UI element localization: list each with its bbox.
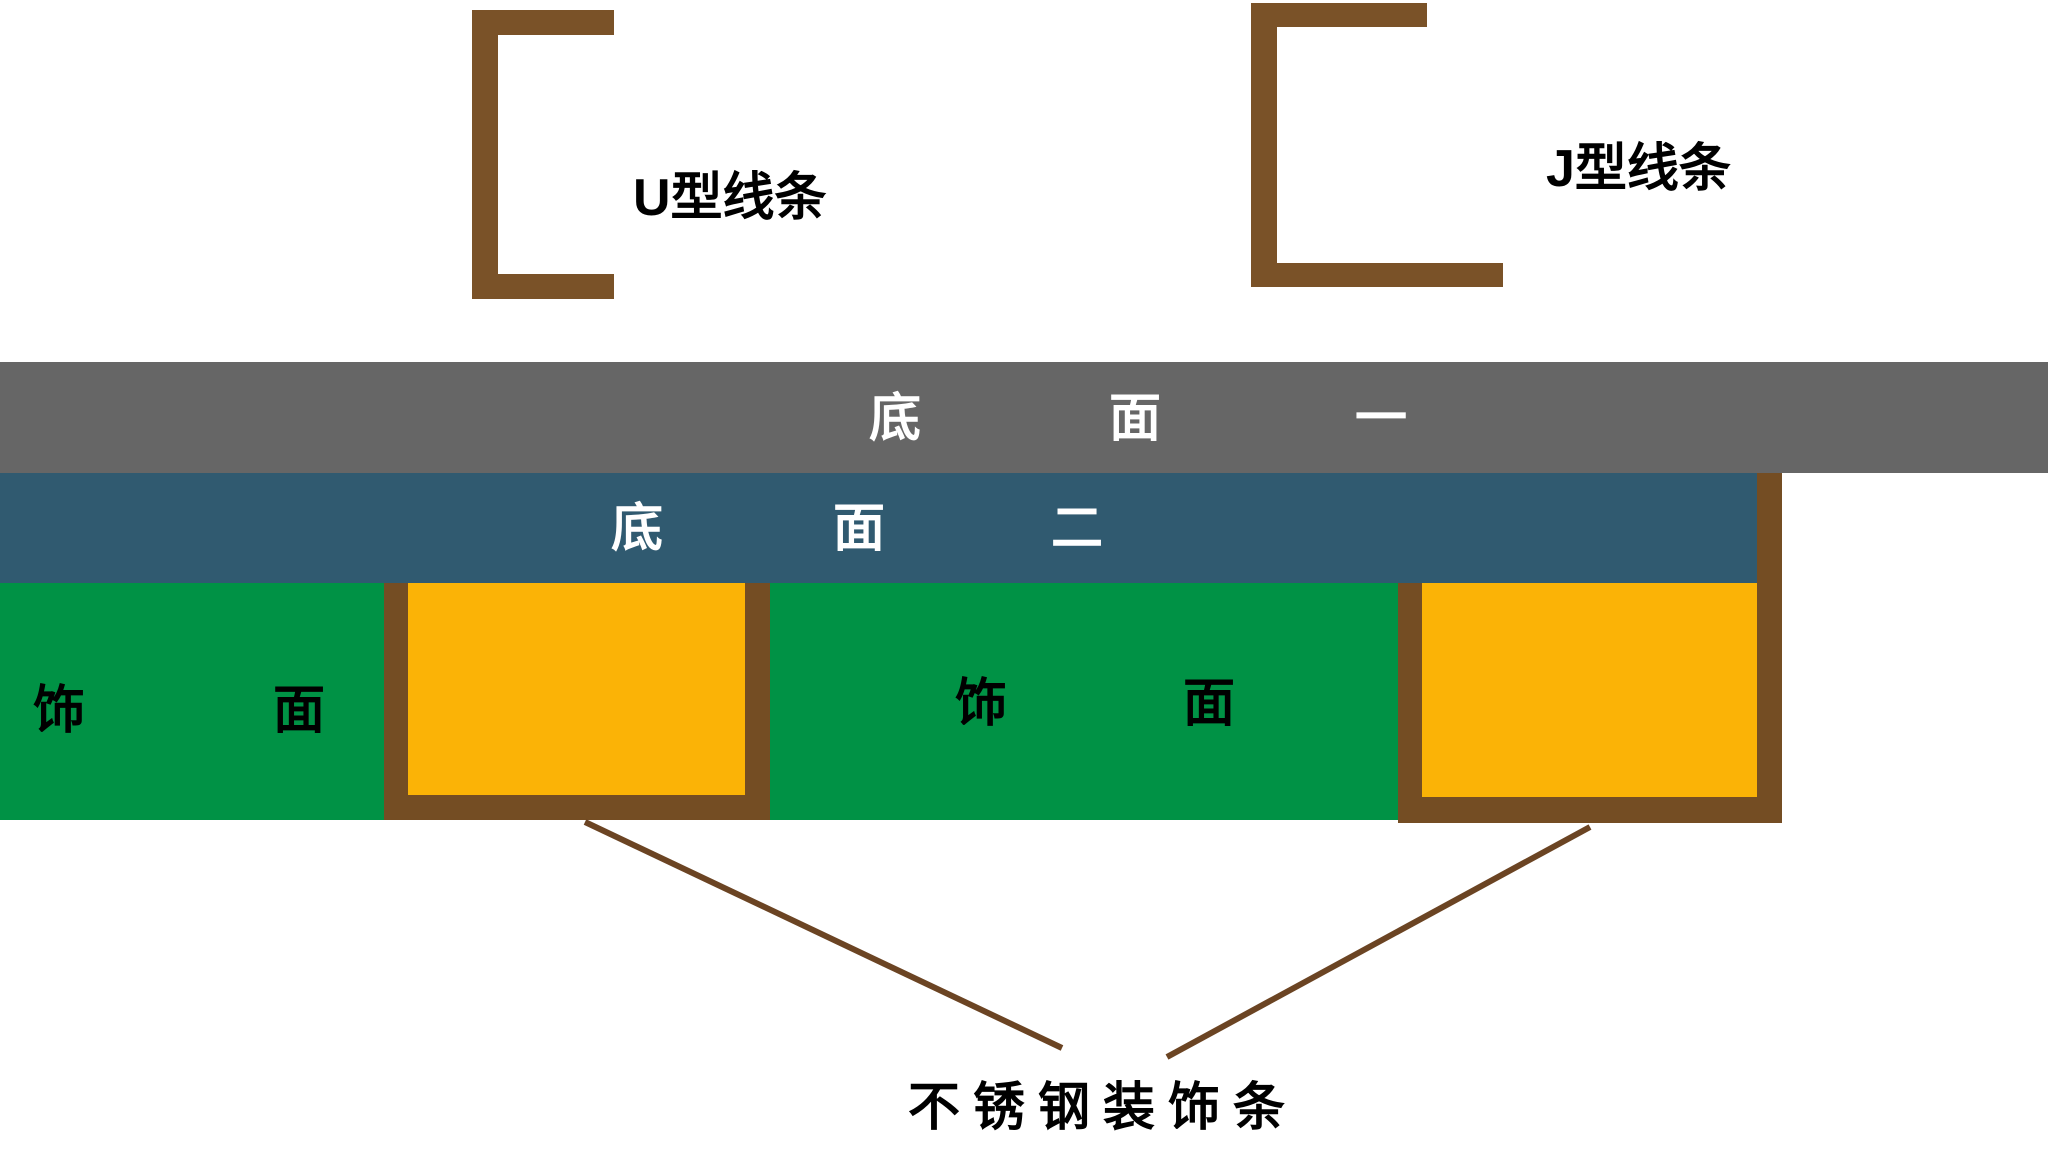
channel-bottom-web xyxy=(384,795,770,820)
channel-bottom-web xyxy=(1398,797,1782,823)
base-layer-1-char: 一 xyxy=(1355,393,1407,445)
finish-panel-mid-char: 面 xyxy=(1183,678,1235,730)
u-profile-label: U型线条 xyxy=(633,172,827,224)
stainless-channel-left xyxy=(384,583,770,820)
finish-panel-left-char: 饰 xyxy=(33,685,85,737)
j-profile-stem xyxy=(1251,3,1277,287)
j-profile-shape xyxy=(1251,3,1503,287)
infill-panel-orange xyxy=(1422,583,1757,797)
finish-panel-mid-char: 饰 xyxy=(955,678,1007,730)
base-layer-2-char: 面 xyxy=(833,503,885,555)
u-profile-shape xyxy=(472,10,614,299)
j-profile-label: J型线条 xyxy=(1546,143,1731,195)
diagram-canvas: U型线条 J型线条 底 面 一 底 面 二 饰 面 饰 面 xyxy=(0,0,2048,1153)
base-layer-1-char: 底 xyxy=(869,393,921,445)
infill-panel-orange xyxy=(408,583,745,795)
base-layer-2-char: 二 xyxy=(1051,503,1103,555)
stainless-channel-right xyxy=(1398,473,1782,823)
channel-left-flange xyxy=(1398,583,1422,823)
callout-line-left xyxy=(585,822,1062,1048)
channel-right-flange xyxy=(1757,473,1782,823)
j-profile-top-arm xyxy=(1251,3,1427,27)
channel-right-flange xyxy=(745,583,770,820)
j-profile-bottom-arm xyxy=(1251,263,1503,287)
callout-label: 不锈钢装饰条 xyxy=(908,1082,1298,1134)
finish-panel-left-char: 面 xyxy=(273,685,325,737)
callout-line-right xyxy=(1167,827,1590,1057)
base-layer-2-char: 底 xyxy=(611,503,663,555)
base-layer-1-char: 面 xyxy=(1109,393,1161,445)
finish-panel-mid: 饰 面 xyxy=(770,583,1398,820)
finish-panel-left: 饰 面 xyxy=(0,583,384,820)
base-layer-1-bar: 底 面 一 xyxy=(0,362,2048,473)
channel-left-flange xyxy=(384,583,408,820)
